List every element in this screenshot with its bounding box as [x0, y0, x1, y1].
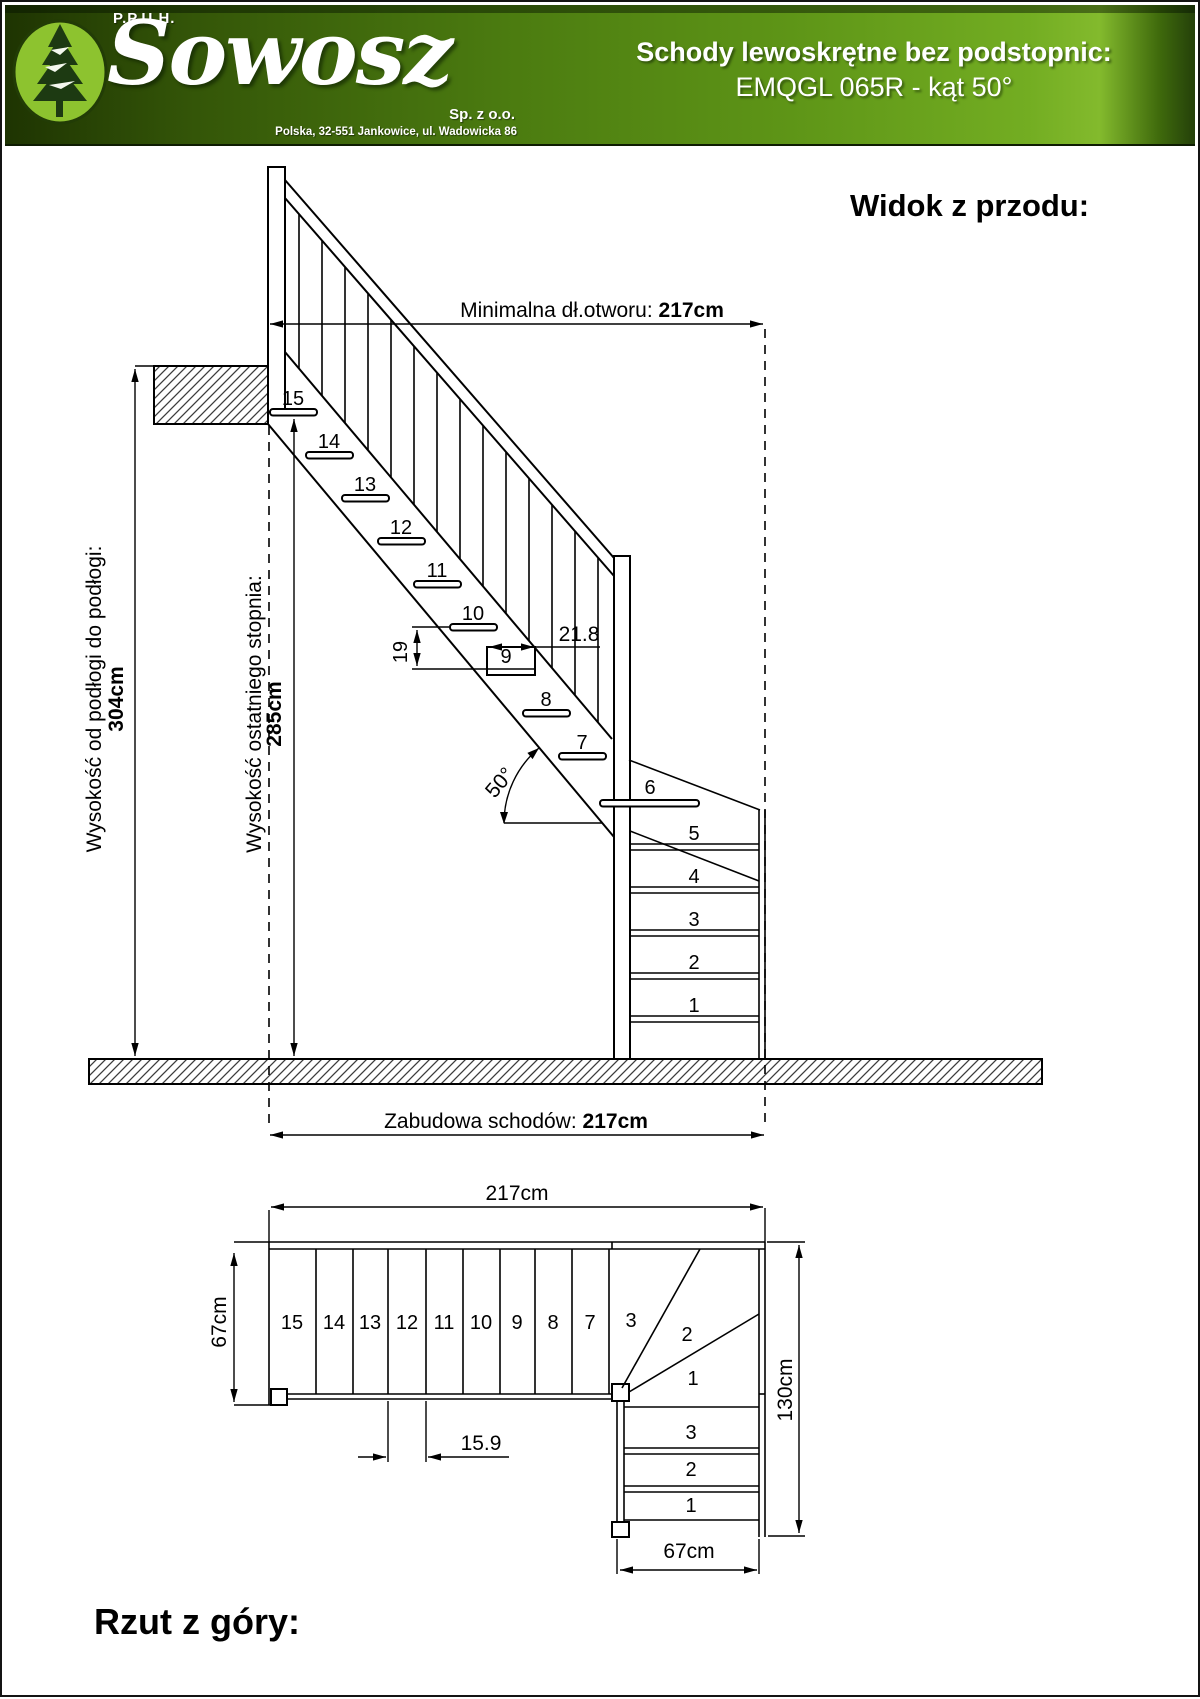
dim-plan-width: 217cm [269, 1182, 765, 1242]
svg-text:15: 15 [281, 1312, 303, 1334]
flight-treads [270, 409, 699, 807]
balusters [299, 214, 598, 722]
svg-text:67cm: 67cm [663, 1540, 714, 1563]
ground-floor [89, 1059, 1042, 1084]
svg-text:8: 8 [540, 689, 551, 711]
dim-bottom-width: 67cm [617, 1539, 759, 1574]
dim-enclosure: Zabudowa schodów: 217cm [270, 1110, 764, 1135]
svg-text:14: 14 [318, 431, 340, 453]
svg-text:304cm: 304cm [105, 666, 128, 731]
stairs-technical-drawing: Widok z przodu: [2, 2, 1200, 1699]
svg-text:9: 9 [500, 646, 511, 668]
svg-text:15.9: 15.9 [461, 1432, 502, 1455]
svg-text:67cm: 67cm [208, 1296, 231, 1347]
svg-text:Zabudowa schodów: 217cm: Zabudowa schodów: 217cm [384, 1110, 648, 1133]
svg-text:11: 11 [427, 560, 448, 582]
top-newel-post [268, 167, 285, 412]
svg-text:15: 15 [282, 388, 304, 410]
svg-text:1: 1 [688, 995, 699, 1017]
page: P.P.U.H. Sowosz Sp. z o.o. Polska, 32-55… [0, 0, 1200, 1697]
dim-going: 15.9 [358, 1401, 509, 1462]
svg-text:9: 9 [511, 1312, 522, 1334]
dim-right-depth: 130cm [767, 1242, 805, 1536]
svg-text:1: 1 [685, 1495, 696, 1517]
svg-text:3: 3 [625, 1310, 636, 1332]
svg-text:5: 5 [688, 823, 699, 845]
handrail [285, 180, 614, 576]
plan-corner-newel [612, 1384, 629, 1401]
svg-text:2: 2 [688, 952, 699, 974]
svg-text:Minimalna dł.otworu: 217cm: Minimalna dł.otworu: 217cm [460, 299, 724, 322]
svg-text:7: 7 [584, 1312, 595, 1334]
svg-text:13: 13 [359, 1312, 381, 1334]
svg-text:2: 2 [681, 1324, 692, 1346]
svg-text:7: 7 [576, 732, 587, 754]
svg-text:10: 10 [462, 603, 484, 625]
svg-text:217cm: 217cm [485, 1182, 548, 1205]
svg-text:14: 14 [323, 1312, 345, 1334]
stringer-top-edge [285, 352, 612, 739]
svg-text:10: 10 [470, 1312, 492, 1334]
svg-text:13: 13 [354, 474, 376, 496]
svg-text:Wysokość od podłogi do podłogi: Wysokość od podłogi do podłogi: [83, 546, 106, 853]
svg-text:3: 3 [688, 909, 699, 931]
front-view-heading: Widok z przodu: [850, 188, 1089, 223]
plan-bottom-newel [612, 1522, 629, 1537]
svg-text:12: 12 [390, 517, 412, 539]
front-view: Widok z przodu: [83, 167, 1089, 1135]
top-view-heading: Rzut z góry: [94, 1601, 300, 1642]
dim-tread-depth: 21.8 [489, 623, 600, 647]
front-view-step-numbers: 15 14 13 12 11 10 9 8 7 6 5 4 3 2 1 [282, 388, 700, 1017]
svg-text:12: 12 [396, 1312, 418, 1334]
dim-minimal-opening: Minimalna dł.otworu: 217cm [270, 299, 763, 324]
top-view: 15 14 13 12 11 10 9 8 7 3 2 1 3 2 1 [94, 1182, 805, 1642]
dim-floor-to-floor: Wysokość od podłogi do podłogi: 304cm [83, 369, 135, 1056]
svg-text:4: 4 [688, 866, 699, 888]
svg-text:3: 3 [685, 1422, 696, 1444]
plan-handrail [271, 1384, 629, 1405]
dim-rise: 19 [390, 627, 487, 669]
svg-text:50°: 50° [481, 763, 519, 802]
svg-text:19: 19 [390, 641, 412, 663]
svg-text:285cm: 285cm [263, 681, 286, 746]
plan-left-newel [271, 1389, 287, 1405]
svg-text:21.8: 21.8 [559, 623, 600, 646]
svg-text:6: 6 [644, 777, 655, 799]
svg-text:11: 11 [434, 1312, 455, 1334]
dim-flight-depth: 67cm [208, 1253, 271, 1405]
svg-text:130cm: 130cm [774, 1358, 797, 1421]
svg-text:2: 2 [685, 1459, 696, 1481]
svg-text:1: 1 [687, 1368, 698, 1390]
upper-floor-wall [154, 366, 268, 424]
svg-text:8: 8 [547, 1312, 558, 1334]
